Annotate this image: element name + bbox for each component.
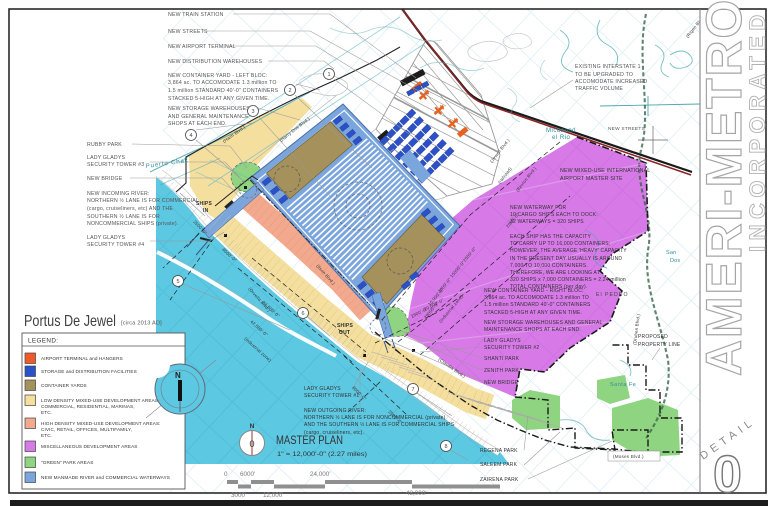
svg-text:NEW BRIDGE: NEW BRIDGE [87, 176, 123, 182]
svg-text:NONCOMMERCIAL SHIPS (private).: NONCOMMERCIAL SHIPS (private). [87, 221, 178, 227]
svg-text:Micoaond: Micoaond [546, 128, 576, 134]
svg-text:MAINTENANCE SHOPS AT EACH END.: MAINTENANCE SHOPS AT EACH END. [484, 327, 581, 333]
svg-text:SECURITY TOWER #3: SECURITY TOWER #3 [87, 162, 144, 168]
svg-text:El PEDRO: El PEDRO [596, 292, 629, 298]
svg-text:AIRPORT MASTER SITE: AIRPORT MASTER SITE [560, 176, 623, 182]
svg-text:0: 0 [224, 471, 228, 478]
svg-text:ACCOMODATE INCREASED: ACCOMODATE INCREASED [575, 79, 648, 85]
svg-text:320 SHIPS x 7,000 CONTAINERS =: 320 SHIPS x 7,000 CONTAINERS = 2.24 mill… [510, 277, 626, 283]
svg-text:NEW CONTAINER YARD - LEFT BLO: NEW CONTAINER YARD - LEFT BLOC: [168, 73, 268, 79]
svg-text:ETC.: ETC. [41, 410, 52, 415]
svg-text:SOUTHERN ½ LANE IS FOR: SOUTHERN ½ LANE IS FOR [87, 213, 160, 220]
svg-text:Dos: Dos [670, 258, 680, 264]
svg-text:N: N [250, 423, 255, 430]
svg-text:AND GENERAL MAINTENANCE: AND GENERAL MAINTENANCE [168, 114, 249, 120]
svg-text:EACH SHIP HAS THE CAPACITY: EACH SHIP HAS THE CAPACITY [510, 234, 592, 240]
svg-text:AIRPORT TERMINAL and HANGERS: AIRPORT TERMINAL and HANGERS [41, 356, 123, 361]
svg-text:AMERI-METRO: AMERI-METRO [696, 0, 752, 376]
svg-text:NORTHERN ½ LANE IS FOR NONCOMM: NORTHERN ½ LANE IS FOR NONCOMMERCIAL (pr… [304, 414, 446, 421]
svg-text:NEW BRIDGE: NEW BRIDGE [484, 380, 519, 386]
svg-text:NEW TRAIN STATION: NEW TRAIN STATION [168, 12, 224, 18]
svg-text:SHOPS AT EACH END.: SHOPS AT EACH END. [168, 121, 227, 127]
svg-text:SECURITY TOWER #1: SECURITY TOWER #1 [304, 393, 359, 399]
svg-text:HOWEVER, THE AVERAGE 'HEAVY' C: HOWEVER, THE AVERAGE 'HEAVY' CAPACITY [510, 248, 627, 254]
svg-text:LADY GLADYS: LADY GLADYS [304, 386, 341, 392]
svg-text:12,000': 12,000' [263, 492, 283, 499]
svg-text:ETC.: ETC. [41, 433, 52, 438]
svg-text:RUBBY PARK: RUBBY PARK [87, 142, 122, 148]
svg-text:IN: IN [203, 208, 209, 214]
svg-text:3,864 ac. TO ACCOMODATE 1.3 mi: 3,864 ac. TO ACCOMODATE 1.3 million TO [168, 80, 277, 86]
svg-text:48,000': 48,000' [406, 490, 426, 497]
svg-text:LADY GLADYS: LADY GLADYS [87, 155, 125, 161]
svg-text:MASTER PLAN: MASTER PLAN [276, 435, 343, 447]
svg-text:REGENA PARK: REGENA PARK [480, 448, 518, 454]
svg-text:LADY GLADYS: LADY GLADYS [484, 338, 521, 344]
svg-text:CIVIC, RETAIL, OFFICES, MULTIF: CIVIC, RETAIL, OFFICES, MULTIFAMILY, [41, 427, 132, 432]
svg-text:TO CARRY UP TO 16,000 CONTAINE: TO CARRY UP TO 16,000 CONTAINERS; [510, 241, 610, 247]
svg-text:3000': 3000' [231, 492, 246, 499]
svg-text:ZENITH PARK: ZENITH PARK [484, 368, 519, 374]
svg-text:PROPOSED: PROPOSED [638, 334, 668, 340]
svg-text:4: 4 [189, 133, 192, 139]
svg-text:EXISTING INTERSTATE 1: EXISTING INTERSTATE 1 [575, 64, 641, 70]
svg-text:NORTHERN ½ LANE IS FOR COMMERC: NORTHERN ½ LANE IS FOR COMMERCIAL [87, 197, 199, 204]
svg-text:3: 3 [251, 109, 254, 115]
svg-text:MISCELLANEOUS DEVELOPMENT AREA: MISCELLANEOUS DEVELOPMENT AREAS [41, 444, 138, 449]
svg-text:OUT: OUT [339, 330, 350, 336]
svg-text:INCORPORATED: INCORPORATED [745, 9, 768, 252]
svg-text:"GREEN" PARK AREAS: "GREEN" PARK AREAS [41, 460, 93, 465]
svg-text:5: 5 [176, 279, 179, 285]
svg-text:NEW MIXED-USE INTERNATIONAL: NEW MIXED-USE INTERNATIONAL [560, 168, 650, 174]
svg-text:AND THE SOUTHERN ½ LANE IS FOR: AND THE SOUTHERN ½ LANE IS FOR COMMERCIA… [304, 421, 455, 428]
svg-text:NEW CONTAINER YARD - RIGHT BL: NEW CONTAINER YARD - RIGHT BLOC: [484, 288, 584, 294]
svg-text:N: N [175, 371, 181, 380]
svg-text:SHIPS: SHIPS [196, 201, 212, 207]
svg-text:NEW INCOMING RIVER:: NEW INCOMING RIVER: [87, 191, 150, 197]
svg-text:NEW MANMADE RIVER and COMMERCI: NEW MANMADE RIVER and COMMERCIAL WATERWA… [41, 475, 170, 480]
svg-text:SHANTI PARK: SHANTI PARK [484, 356, 520, 362]
svg-text:SHIPS: SHIPS [337, 323, 353, 329]
svg-text:STORAGE and DISTRIBUTION FACIL: STORAGE and DISTRIBUTION FACILITIES [41, 369, 137, 374]
svg-text:7,000 TO 10,000 CONTAINERS.: 7,000 TO 10,000 CONTAINERS. [510, 263, 588, 269]
svg-text:NEW STREETS: NEW STREETS [608, 126, 645, 132]
svg-text:STACKED 5-HIGH AT ANY GIVEN TI: STACKED 5-HIGH AT ANY GIVEN TIME. [168, 96, 270, 102]
svg-text:NEW AIRPORT TERMINAL: NEW AIRPORT TERMINAL [168, 44, 236, 50]
svg-text:7: 7 [411, 387, 414, 393]
svg-text:HIGH DENSITY MIXED-USE DEVELOP: HIGH DENSITY MIXED-USE DEVELOPMENT AREAS… [41, 421, 161, 426]
svg-text:6000': 6000' [240, 471, 255, 478]
svg-text:Santa Fe: Santa Fe [610, 382, 636, 388]
svg-text:Portus De Jewel: Portus De Jewel [24, 313, 116, 330]
svg-text:SECURITY TOWER #4: SECURITY TOWER #4 [87, 242, 144, 248]
svg-text:10 CARGO SHIPS EACH TO DOCK:: 10 CARGO SHIPS EACH TO DOCK: [510, 212, 598, 218]
svg-text:PROPERTY LINE: PROPERTY LINE [638, 342, 681, 348]
svg-text:NEW DISTRIBUTION WAREHOUSES: NEW DISTRIBUTION WAREHOUSES [168, 59, 263, 65]
svg-text:2: 2 [288, 88, 291, 94]
svg-text:32 WATERWAYS = 320 SHIPS: 32 WATERWAYS = 320 SHIPS [510, 219, 584, 225]
svg-text:1.5 million STANDARD 40'-0" CO: 1.5 million STANDARD 40'-0" CONTAINERS [168, 88, 279, 94]
svg-text:NEW STORAGE WAREHOUSES: NEW STORAGE WAREHOUSES [168, 106, 250, 112]
svg-text:TRAFFIC VOLUME: TRAFFIC VOLUME [575, 86, 623, 92]
svg-text:THEREFORE, WE ARE LOOKING AT: THEREFORE, WE ARE LOOKING AT [510, 270, 600, 276]
svg-text:8: 8 [444, 444, 447, 450]
svg-text:LADY GLADYS: LADY GLADYS [87, 235, 125, 241]
svg-text:0: 0 [249, 439, 254, 449]
svg-text:COMMERCIAL, RESIDENTIAL, MARIN: COMMERCIAL, RESIDENTIAL, MARINAS, [41, 404, 135, 409]
svg-text:1" = 12,000'-0" (2.27 miles): 1" = 12,000'-0" (2.27 miles) [277, 451, 367, 458]
svg-text:STACKED 5-HIGH AT ANY GIVEN TI: STACKED 5-HIGH AT ANY GIVEN TIME. [484, 310, 582, 316]
svg-text:ZAIRENA PARK: ZAIRENA PARK [480, 477, 519, 483]
svg-text:[circa 2013 AD]: [circa 2013 AD] [121, 321, 162, 327]
svg-text:NEW OUTGOING RIVER:: NEW OUTGOING RIVER: [304, 408, 366, 414]
svg-text:6: 6 [301, 311, 304, 317]
svg-text:(Moses Blvd.): (Moses Blvd.) [613, 454, 644, 459]
svg-text:IN THE PRESENT DAY USUALLY IS: IN THE PRESENT DAY USUALLY IS AROUND [510, 256, 622, 262]
svg-text:SALEEM PARK: SALEEM PARK [480, 462, 518, 468]
svg-text:1: 1 [327, 72, 330, 78]
svg-text:TO BE UPGRADED TO: TO BE UPGRADED TO [575, 72, 633, 78]
svg-text:LOW DENSITY MIXED-USE DEVELOPM: LOW DENSITY MIXED-USE DEVELOPMENT AREAS: [41, 398, 159, 403]
svg-text:NEW STREETS: NEW STREETS [168, 29, 208, 35]
svg-text:(cargo, cruiseliners, etc) AND: (cargo, cruiseliners, etc) AND THE [87, 206, 173, 212]
svg-text:LEGEND:: LEGEND: [28, 338, 58, 345]
svg-text:3,864 ac. TO ACCOMODATE 1.3 mi: 3,864 ac. TO ACCOMODATE 1.3 million TO [484, 295, 589, 301]
svg-text:NEW STORAGE WAREHOUSES AND GEN: NEW STORAGE WAREHOUSES AND GENERAL [484, 320, 603, 326]
svg-text:SECURITY TOWER #2: SECURITY TOWER #2 [484, 345, 539, 351]
svg-text:24,000': 24,000' [310, 471, 330, 478]
svg-text:el Rio: el Rio [552, 135, 571, 141]
svg-text:0: 0 [713, 446, 742, 504]
svg-text:1.5 million STANDARD 40'-0" CO: 1.5 million STANDARD 40'-0" CONTAINERS [484, 302, 591, 308]
svg-text:CONTAINER YARDS: CONTAINER YARDS [41, 383, 87, 388]
svg-text:NEW WATERWAY FOR: NEW WATERWAY FOR [510, 205, 567, 211]
svg-text:San: San [666, 250, 676, 256]
